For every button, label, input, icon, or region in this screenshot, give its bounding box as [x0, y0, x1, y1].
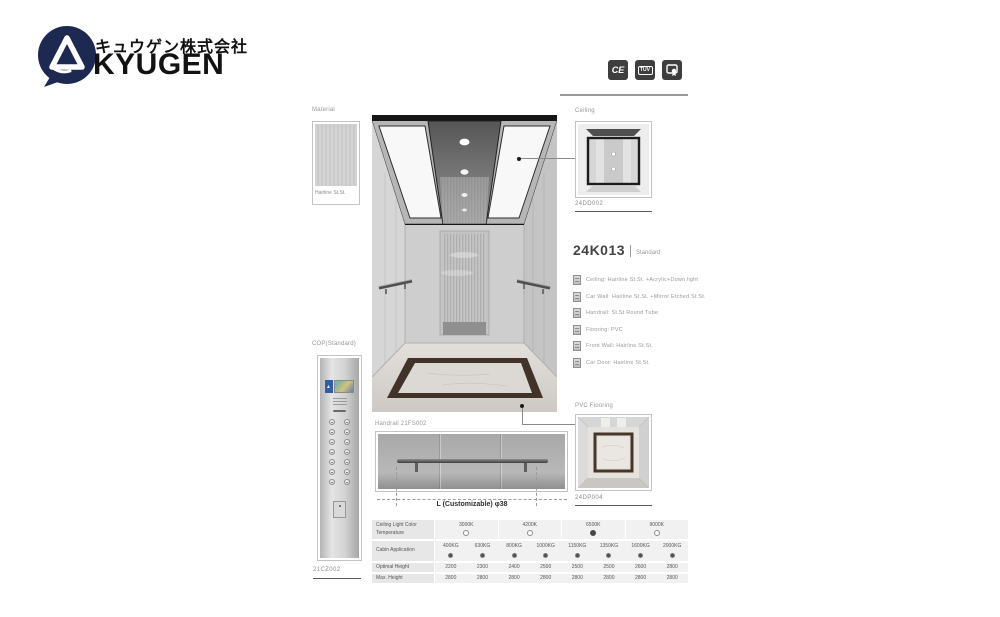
cop-display: ▲ [325, 380, 355, 396]
temperature-cells: 3000K4200K6500K9000K [435, 520, 688, 539]
cop-floor-button [344, 449, 350, 455]
cop-panel-face: ▲ [320, 358, 359, 558]
spec-item: Front Wall: Hairline St.St. [573, 338, 706, 355]
load-value: 2000KG [663, 544, 681, 549]
cop-panel-image: ▲ [317, 355, 362, 561]
load-selected-dot [575, 553, 580, 558]
spec-thumbnail-icon [573, 275, 581, 285]
table-cell: 2800 [593, 574, 625, 583]
cop-floor-button [344, 429, 350, 435]
ceiling-code: 24DD002 [575, 201, 603, 207]
cop-floor-button [329, 429, 335, 435]
table-cell: 6500K [562, 520, 625, 539]
load-selected-dot [543, 553, 548, 558]
dimension-label: L (Customizable) φ38 [432, 501, 511, 508]
cop-floor-button [344, 469, 350, 475]
row-label: Cabin Application [372, 541, 434, 561]
table-cell: 1600KG [625, 541, 657, 561]
brand-logo-icon [36, 25, 98, 89]
table-cell: 2000KG [656, 541, 688, 561]
table-cell: 2800 [656, 563, 688, 572]
load-value: 1600KG [631, 544, 649, 549]
table-cell: 630KG [467, 541, 499, 561]
cop-floor-button [329, 419, 335, 425]
table-cell: 3000K [435, 520, 498, 539]
table-cell: 2500 [593, 563, 625, 572]
load-value: 800KG [506, 544, 522, 549]
height-value: 2500 [540, 565, 551, 570]
spec-text: Front Wall: Hairline St.St. [586, 343, 653, 349]
spec-text: Handrail: St.St Round Tube [586, 310, 658, 316]
cop-section-label: COP(Standard) [312, 341, 356, 347]
temperature-radio [654, 530, 660, 536]
ceiling-code-underline [575, 211, 652, 212]
table-cell: 2800 [625, 574, 657, 583]
table-row-color-temperature: Ceiling Light Color Temperature 3000K420… [372, 520, 688, 539]
table-cell: 4200K [499, 520, 562, 539]
ceiling-callout-line [521, 158, 575, 159]
table-cell: 2800 [530, 574, 562, 583]
cop-text-line [333, 404, 347, 405]
material-caption: Hairline St.St. [315, 190, 357, 196]
height-value: 2200 [445, 565, 456, 570]
spec-thumbnail-icon [573, 308, 581, 318]
table-cell: 800KG [498, 541, 530, 561]
spec-thumbnail-icon [573, 325, 581, 335]
pvc-flooring-detail-image [575, 414, 652, 491]
floor-callout-line-vertical [522, 408, 523, 424]
ce-mark-icon: CE [608, 60, 628, 80]
spec-item: Car Wall: Hairline St.St. +Mirror Etched… [573, 289, 706, 306]
load-selected-dot [512, 553, 517, 558]
pvc-flooring-code: 24DP004 [575, 495, 603, 501]
cop-button-grid [329, 419, 351, 485]
cop-floor-indicator: ▲ [325, 380, 333, 393]
table-cell: 2600 [625, 563, 657, 572]
ceiling-detail-image [575, 121, 652, 198]
temperature-radio [527, 530, 533, 536]
load-selected-dot [670, 553, 675, 558]
cop-floor-button [329, 449, 335, 455]
table-row-cabin-application: Cabin Application 400KG630KG800KG1000KG1… [372, 541, 688, 561]
spec-thumbnail-icon [573, 292, 581, 302]
cop-floor-button [329, 439, 335, 445]
table-cell: 1350KG [593, 541, 625, 561]
handrail-bracket [524, 463, 527, 472]
table-cell: 2500 [562, 563, 594, 572]
temperature-radio [590, 530, 596, 536]
spec-text: Car Wall: Hairline St.St. +Mirror Etched… [586, 294, 706, 300]
cop-floor-button [344, 479, 350, 485]
spec-text: Car Door: Hairline St.St. [586, 360, 650, 366]
spec-text: Ceiling: Hairline St.St. +Acrylic+Down l… [586, 277, 698, 283]
temperature-value: 9000K [650, 523, 664, 528]
load-value: 630KG [475, 544, 491, 549]
table-cell: 9000K [626, 520, 689, 539]
material-swatch: Hairline St.St. [312, 121, 360, 205]
table-cell: 2800 [467, 574, 499, 583]
load-selected-dot [606, 553, 611, 558]
spec-thumbnail-icon [573, 358, 581, 368]
cop-text-line [333, 401, 347, 402]
height-value: 2800 [667, 576, 678, 581]
load-selected-dot [638, 553, 643, 558]
height-value: 2800 [509, 576, 520, 581]
height-value: 2800 [477, 576, 488, 581]
ceiling-section-label: Ceiling [575, 108, 595, 114]
load-value: 1150KG [568, 544, 586, 549]
load-selected-dot [480, 553, 485, 558]
cop-floor-button [344, 439, 350, 445]
cop-code: 21CZ002 [313, 567, 340, 573]
spec-text: Flooring: PVC [586, 327, 623, 333]
cop-text-line [333, 398, 347, 399]
handrail-section-label: Handrail 21FS002 [375, 421, 427, 427]
table-row-max-height: Max. Height 2800280028002800280028002800… [372, 574, 688, 583]
cop-floor-button [329, 459, 335, 465]
cop-speaker-slot [333, 410, 346, 412]
material-swatch-texture [315, 124, 357, 186]
temperature-value: 6500K [586, 523, 600, 528]
table-cell: 2800 [498, 574, 530, 583]
table-cell: 1150KG [562, 541, 594, 561]
table-cell: 2300 [467, 563, 499, 572]
cop-floor-button [344, 459, 350, 465]
cop-code-underline [313, 578, 361, 579]
table-row-optimal-height: Optimal Height 2200230024002500250025002… [372, 563, 688, 572]
cop-floor-button [344, 419, 350, 425]
height-value: 2800 [540, 576, 551, 581]
cabin-interior-render [372, 115, 557, 412]
temperature-value: 4200K [523, 523, 537, 528]
spec-item: Flooring: PVC [573, 322, 706, 339]
cop-screen [334, 380, 354, 393]
header-divider [560, 94, 688, 96]
handrail-bracket [415, 463, 418, 472]
table-cell: 2400 [498, 563, 530, 572]
height-value: 2800 [667, 565, 678, 570]
height-value: 2800 [572, 576, 583, 581]
model-code: 24K013 [573, 243, 625, 257]
spec-list: Ceiling: Hairline St.St. +Acrylic+Down l… [573, 272, 706, 371]
load-value: 1350KG [600, 544, 618, 549]
height-value: 2800 [603, 576, 614, 581]
height-value: 2300 [477, 565, 488, 570]
model-title: 24K013 Standard [573, 243, 660, 257]
model-variant: Standard [636, 250, 660, 257]
tuv-mark-icon: TÜV [635, 60, 655, 80]
height-value: 2600 [635, 565, 646, 570]
cop-floor-button [329, 479, 335, 485]
spec-thumbnail-icon [573, 341, 581, 351]
model-title-divider [630, 245, 631, 257]
load-value: 400KG [443, 544, 459, 549]
cabin-application-cells: 400KG630KG800KG1000KG1150KG1350KG1600KG2… [435, 541, 688, 561]
optimal-height-cells: 22002300240025002500250026002800 [435, 563, 688, 572]
table-cell: 400KG [435, 541, 467, 561]
options-table: Ceiling Light Color Temperature 3000K420… [372, 520, 688, 584]
pvc-flooring-code-underline [575, 505, 652, 506]
material-section-label: Material [312, 107, 335, 113]
spec-item: Ceiling: Hairline St.St. +Acrylic+Down l… [573, 272, 706, 289]
row-label: Ceiling Light Color Temperature [372, 520, 434, 539]
row-label: Max. Height [372, 574, 434, 583]
height-value: 2800 [635, 576, 646, 581]
pvc-flooring-section-label: PVC Flooring [575, 403, 613, 409]
height-value: 2400 [509, 565, 520, 570]
temperature-radio [463, 530, 469, 536]
floor-callout-line-horizontal [522, 424, 575, 425]
cop-key-switch [333, 501, 346, 518]
dimension-label-wrap: L (Customizable) φ38 [377, 493, 567, 511]
table-cell: 2800 [562, 574, 594, 583]
temperature-value: 3000K [459, 523, 473, 528]
row-label: Optimal Height [372, 563, 434, 572]
load-value: 1000KG [537, 544, 555, 549]
spec-item: Car Door: Hairline St.St. [573, 355, 706, 372]
cop-floor-button [329, 469, 335, 475]
table-cell: 2800 [656, 574, 688, 583]
table-cell: 1000KG [530, 541, 562, 561]
table-cell: 2500 [530, 563, 562, 572]
spec-sheet-page: キュウゲン株式会社 KYUGEN CE TÜV Material Hairlin… [0, 0, 1000, 617]
height-value: 2800 [445, 576, 456, 581]
handrail-detail-image [375, 431, 568, 492]
spec-item: Handrail: St.St Round Tube [573, 305, 706, 322]
height-value: 2500 [572, 565, 583, 570]
certificate-icon [662, 60, 682, 80]
brand-name-english: KYUGEN [93, 50, 224, 80]
table-cell: 2800 [435, 574, 467, 583]
height-value: 2500 [603, 565, 614, 570]
load-selected-dot [448, 553, 453, 558]
table-cell: 2200 [435, 563, 467, 572]
max-height-cells: 28002800280028002800280028002800 [435, 574, 688, 583]
